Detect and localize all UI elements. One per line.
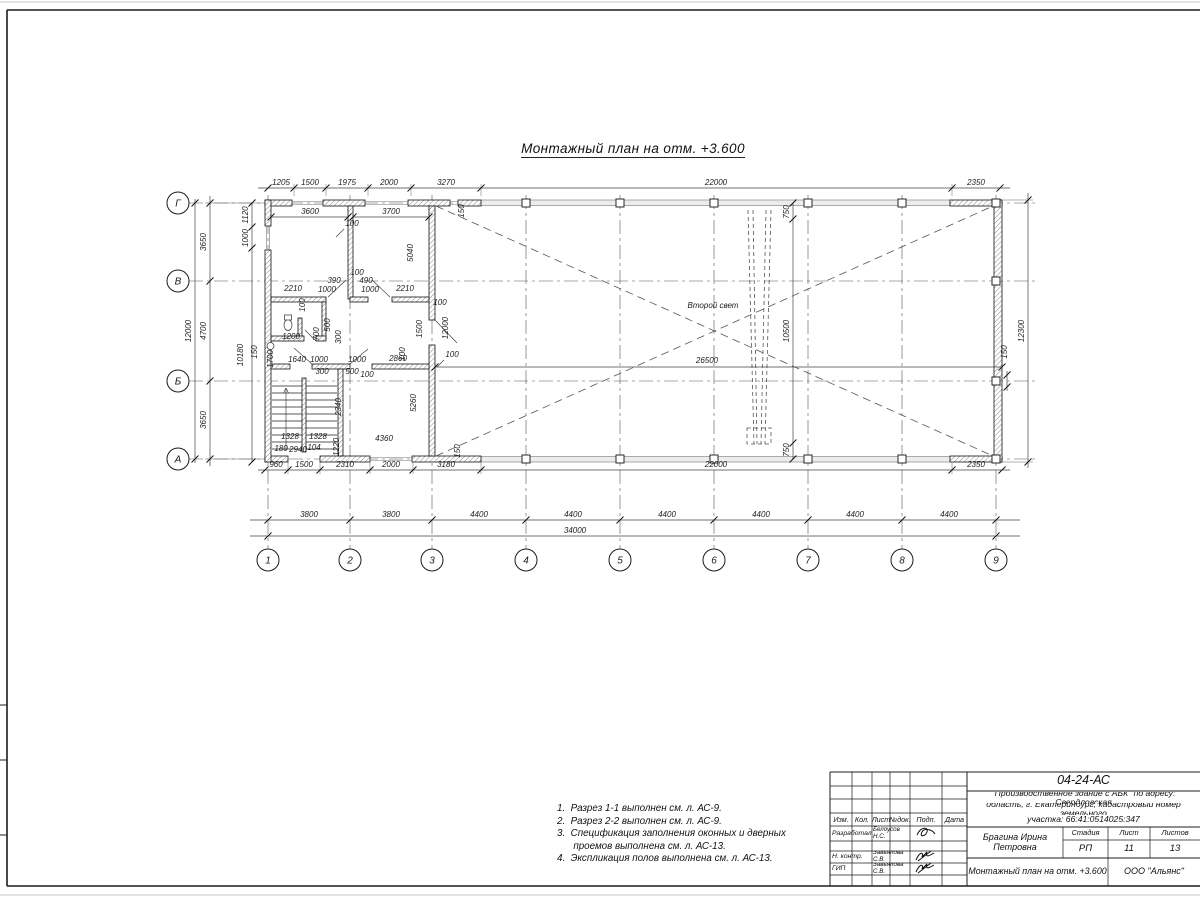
dim-label: 4400 xyxy=(846,510,864,519)
svg-text:3: 3 xyxy=(429,556,435,567)
col-data: Дата xyxy=(942,813,967,826)
row-role: Н. контр. xyxy=(832,851,872,863)
sheet-title: Монтажный план на отм. +3.600 xyxy=(967,858,1108,886)
dimension-labels: 1205150019752000327022000235036003700960… xyxy=(184,178,1026,535)
dim-label: 12300 xyxy=(1017,319,1026,342)
sheet-value: 11 xyxy=(1108,840,1150,858)
axis-bubble: 5 xyxy=(609,549,631,571)
dim-label: 1328 xyxy=(281,432,299,441)
dim-label: 150 xyxy=(457,204,466,218)
col-ndoc: №док. xyxy=(890,813,910,826)
dim-label: 1205 xyxy=(272,178,290,187)
dim-label: 100 xyxy=(433,298,447,307)
axis-bubble: 7 xyxy=(797,549,819,571)
note-line: 2. Разрез 2-2 выполнен см. л. АС-9. xyxy=(557,816,786,829)
note-line: 3. Спецификация заполнения оконных и две… xyxy=(557,828,786,841)
dim-label: 1500 xyxy=(295,460,313,469)
svg-text:4: 4 xyxy=(523,556,529,567)
dim-label: 4700 xyxy=(199,322,208,340)
axis-bubble: 4 xyxy=(515,549,537,571)
row-role: ГИП xyxy=(832,863,872,875)
dim-label: 10180 xyxy=(236,343,245,366)
dim-label: 700 xyxy=(312,327,321,341)
dim-label: 2340 xyxy=(334,398,343,417)
organization: ООО "Альянс" xyxy=(1108,858,1200,886)
dim-label: 2350 xyxy=(966,178,985,187)
drawing-sheet: { "page": { "title": "Монтажный план на … xyxy=(0,0,1200,900)
column-marker xyxy=(992,455,1000,463)
dim-label: 1328 xyxy=(309,432,327,441)
dim-label: 1000 xyxy=(310,355,328,364)
dim-label: 3650 xyxy=(199,233,208,251)
column-marker xyxy=(898,199,906,207)
axis-bubble: 6 xyxy=(703,549,725,571)
floor-plan-svg: 1205150019752000327022000235036003700960… xyxy=(0,0,1200,900)
dim-label: 4400 xyxy=(470,510,488,519)
dim-label: 300 xyxy=(315,367,329,376)
dim-label: 2310 xyxy=(335,460,354,469)
dim-label: 3180 xyxy=(437,460,455,469)
dim-label: 5260 xyxy=(409,394,418,412)
signature-scribble xyxy=(913,825,939,840)
axis-bubble: Б xyxy=(167,370,189,392)
dim-label: 500 xyxy=(345,367,359,376)
toilet-icon xyxy=(284,320,292,331)
row-role: Разработал xyxy=(832,826,872,841)
sink-icon xyxy=(267,343,274,350)
walls xyxy=(265,200,1002,462)
axis-bubble: В xyxy=(167,270,189,292)
note-line: 4. Экспликация полов выполнена см. л. АС… xyxy=(557,853,786,866)
column-marker xyxy=(992,199,1000,207)
dim-label: 1500 xyxy=(415,320,424,338)
svg-text:8: 8 xyxy=(899,556,905,567)
dim-label: 2000 xyxy=(381,460,400,469)
dim-label: 1000 xyxy=(361,285,379,294)
dim-label: 12000 xyxy=(441,316,450,339)
dim-label: 3600 xyxy=(301,207,319,216)
columns xyxy=(522,199,1000,463)
column-marker xyxy=(616,455,624,463)
dim-label: 22000 xyxy=(704,460,728,469)
dim-label: 1000 xyxy=(241,229,250,247)
axis-bubble: 8 xyxy=(891,549,913,571)
dim-label: 4400 xyxy=(564,510,582,519)
second-light-label: Второй свет xyxy=(688,301,739,310)
dim-label: 104 xyxy=(307,443,321,452)
axis-bubble: 9 xyxy=(985,549,1007,571)
stage-value: РП xyxy=(1063,840,1108,858)
dim-label: 2210 xyxy=(395,284,414,293)
dim-label: 3650 xyxy=(199,411,208,429)
dim-label: 22000 xyxy=(704,178,728,187)
page-title: Монтажный план на отм. +3.600 xyxy=(433,141,833,156)
svg-text:В: В xyxy=(175,277,182,288)
dim-label: 150 xyxy=(453,444,462,458)
dim-label: 10500 xyxy=(782,319,791,342)
column-marker xyxy=(804,455,812,463)
dim-label: 4360 xyxy=(375,434,393,443)
dim-label: 3800 xyxy=(300,510,318,519)
dim-label: 4400 xyxy=(658,510,676,519)
axis-bubbles: ГВБА123456789 xyxy=(167,192,1007,571)
sheet-header: Лист xyxy=(1108,827,1150,840)
dim-label: 26500 xyxy=(695,356,719,365)
stage-header: Стадия xyxy=(1063,827,1108,840)
column-marker xyxy=(898,455,906,463)
dim-label: 1220 xyxy=(332,438,341,456)
dim-label: 4400 xyxy=(752,510,770,519)
dim-label: 3270 xyxy=(437,178,455,187)
doc-code: 04-24-АС xyxy=(967,771,1200,791)
signature-scribble xyxy=(913,861,939,875)
dim-label: 4400 xyxy=(940,510,958,519)
second-light-opening xyxy=(436,206,993,456)
svg-text:6: 6 xyxy=(711,556,717,567)
dim-label: 490 xyxy=(359,276,373,285)
dim-label: 960 xyxy=(269,460,283,469)
axis-bubble: 2 xyxy=(339,549,361,571)
row-name: Белоусов Н.С. xyxy=(873,826,910,841)
dim-label: 300 xyxy=(334,330,343,344)
axis-bubble: А xyxy=(167,448,189,470)
author-name: Брагина Ирина Петровна xyxy=(967,827,1063,858)
dim-label: 150 xyxy=(1000,345,1009,359)
dim-label: 1700 xyxy=(266,350,275,368)
column-marker xyxy=(522,199,530,207)
column-marker xyxy=(522,455,530,463)
svg-text:1: 1 xyxy=(265,556,271,567)
svg-text:А: А xyxy=(174,455,182,466)
dim-label: 2350 xyxy=(966,460,985,469)
notes: 1. Разрез 1-1 выполнен см. л. АС-9.2. Ра… xyxy=(557,803,786,866)
dim-label: 12000 xyxy=(184,319,193,342)
dim-label: 34000 xyxy=(564,526,587,535)
dim-label: 1975 xyxy=(338,178,356,187)
dim-label: 3800 xyxy=(382,510,400,519)
hall-edge-beams xyxy=(481,200,950,462)
column-marker xyxy=(616,199,624,207)
dim-label: 1640 xyxy=(288,355,306,364)
column-marker xyxy=(992,277,1000,285)
column-marker xyxy=(992,377,1000,385)
dim-label: 180 xyxy=(274,444,288,453)
dim-label: 1120 xyxy=(241,206,250,224)
dim-label: 150 xyxy=(250,345,259,359)
col-izm: Изм. xyxy=(830,813,852,826)
svg-text:Б: Б xyxy=(175,377,182,388)
axis-bubble: 1 xyxy=(257,549,279,571)
column-marker xyxy=(710,199,718,207)
dim-label: 390 xyxy=(327,276,341,285)
note-line: проемов выполнена см. л. АС-13. xyxy=(557,841,786,854)
dim-label: 100 xyxy=(360,370,374,379)
sheets-value: 13 xyxy=(1150,840,1200,858)
dim-label: 2000 xyxy=(379,178,398,187)
row-name: Завьялова С.В. xyxy=(873,863,910,875)
dim-label: 2940 xyxy=(288,445,307,454)
svg-text:5: 5 xyxy=(617,556,623,567)
axis-bubble: 3 xyxy=(421,549,443,571)
dim-label: 100 xyxy=(445,350,459,359)
dim-label: 1200 xyxy=(282,332,300,341)
dim-label: 750 xyxy=(782,205,791,219)
sheets-header: Листов xyxy=(1150,827,1200,840)
dim-label: 750 xyxy=(782,443,791,457)
dim-label: 1000 xyxy=(348,355,366,364)
row-name: Завьялова С.В. xyxy=(873,851,910,863)
column-marker xyxy=(804,199,812,207)
col-kol: Кол. xyxy=(852,813,872,826)
dim-label: 2210 xyxy=(283,284,302,293)
svg-text:2: 2 xyxy=(346,556,353,567)
dim-label: 1500 xyxy=(301,178,319,187)
dim-label: 3700 xyxy=(382,207,400,216)
dim-label: 500 xyxy=(323,318,332,332)
dim-label: 100 xyxy=(345,219,359,228)
dim-label: 1000 xyxy=(318,285,336,294)
dim-label: 5040 xyxy=(406,244,415,262)
dim-label: 100 xyxy=(398,347,407,361)
axis-bubble: Г xyxy=(167,192,189,214)
dim-label: 100 xyxy=(298,298,307,312)
svg-text:7: 7 xyxy=(805,556,811,567)
note-line: 1. Разрез 1-1 выполнен см. л. АС-9. xyxy=(557,803,786,816)
svg-text:9: 9 xyxy=(993,556,999,567)
col-list: Лист xyxy=(872,813,890,826)
